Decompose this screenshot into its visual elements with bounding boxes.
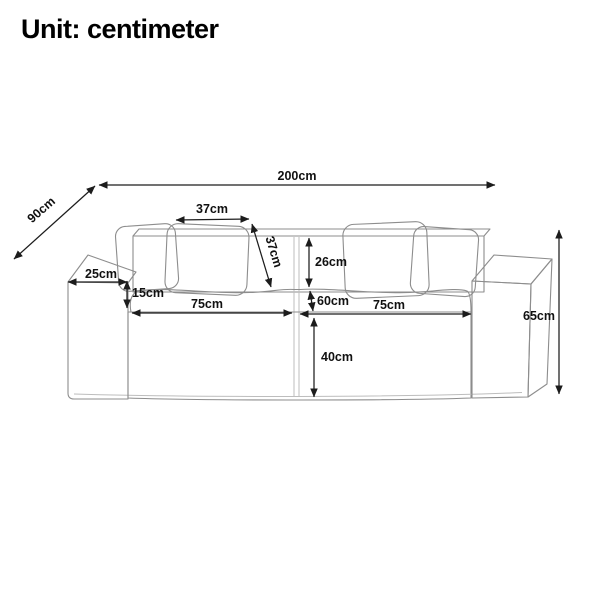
dimension-base-height: 40cm [314,318,353,397]
dimension-armrest-width-label: 25cm [85,267,117,281]
sofa-module-seam [294,237,299,397]
dimension-seat-thickness: 15cm [127,281,164,308]
dimension-pillow-width-label: 37cm [196,202,228,216]
dimension-seat-depth-line [310,291,313,311]
dimension-seat-width-right-label: 75cm [373,298,405,312]
dimension-total-depth-label: 90cm [25,194,58,226]
dimension-total-height-label: 65cm [523,309,555,323]
sofa-dimension-diagram: 200cm 90cm 37cm 37cm 26cm 60cm [0,0,600,600]
dimension-base-height-label: 40cm [321,350,353,364]
sofa-backrest [133,229,490,292]
dimension-pillow-height: 37cm [252,224,285,287]
dimension-seat-thickness-label: 15cm [132,286,164,300]
sofa-pillows [115,221,479,299]
sofa-pillow-right-inner [342,221,429,299]
dimension-pillow-width-line [176,219,249,220]
dimension-total-width-label: 200cm [278,169,317,183]
diagram-canvas: Unit: centimeter [0,0,600,600]
dimension-seat-depth-label: 60cm [317,294,349,308]
sofa-base [74,312,522,400]
dimension-seat-depth: 60cm [310,291,349,311]
dimension-total-depth-line [14,186,95,259]
dimension-total-depth: 90cm [14,186,95,259]
dimension-seat-width-left-label: 75cm [191,297,223,311]
dimension-pillow-width: 37cm [176,202,249,220]
dimension-backrest-height-label: 26cm [315,255,347,269]
dimension-total-width: 200cm [99,169,495,185]
dimension-backrest-height: 26cm [309,238,347,287]
dimension-pillow-height-label: 37cm [262,234,285,269]
sofa-illustration [68,221,552,400]
sofa-pillow-right-outer [410,226,480,297]
